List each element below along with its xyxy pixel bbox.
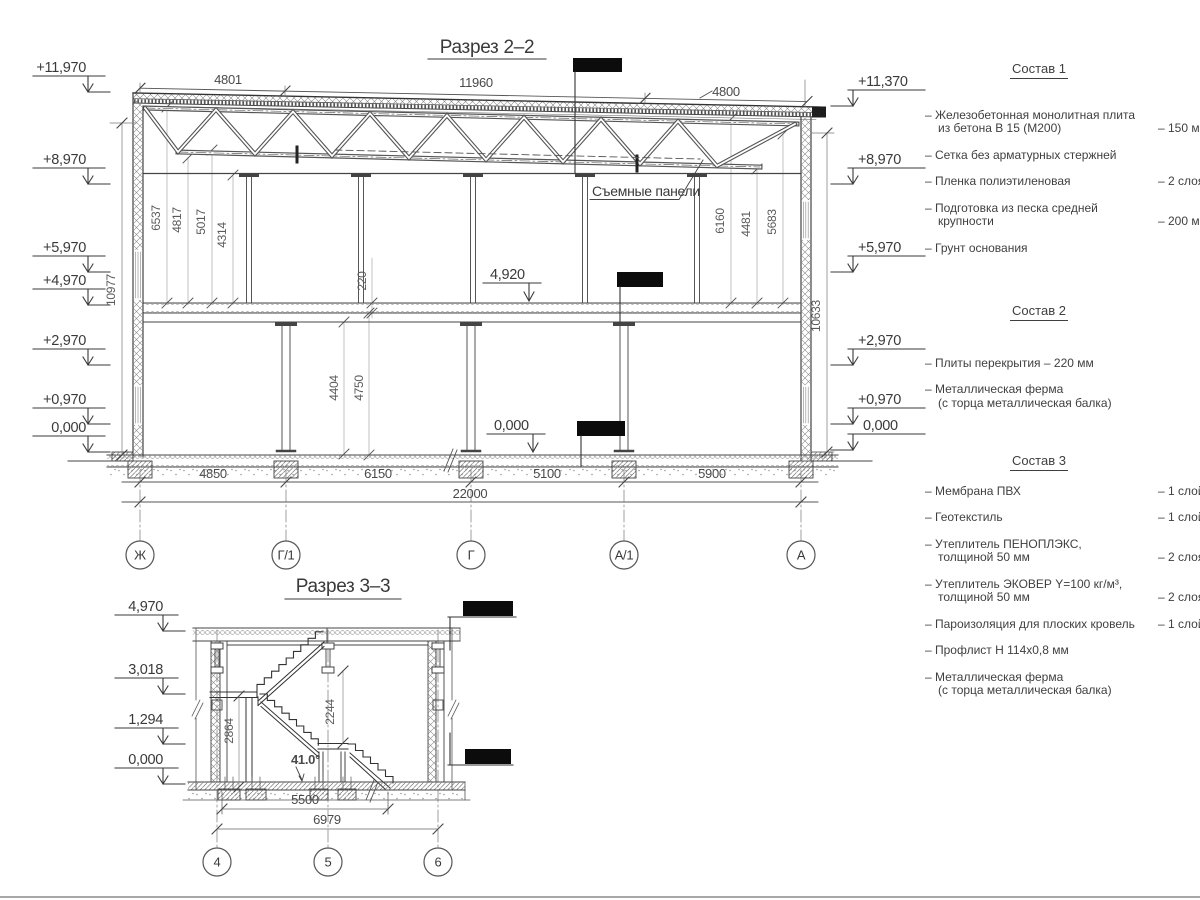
grid-axis-label: А xyxy=(797,548,806,563)
span-dim: 6150 xyxy=(364,466,392,481)
elevation-label: +0,970 xyxy=(858,392,901,408)
span-total-dim: 22000 xyxy=(453,486,488,501)
elevation-label: +11,970 xyxy=(36,60,86,76)
legend-item: – Металлическая ферма (с торца металличе… xyxy=(925,671,1200,698)
legend-item: – Пленка полиэтиленовая – 2 слоя xyxy=(925,175,1200,189)
legend-item: – Плиты перекрытия – 220 мм xyxy=(925,357,1200,371)
legend-item: – Профлист Н 114х0,8 мм xyxy=(925,644,1200,658)
stair-vdim: 2864 xyxy=(222,718,236,744)
material-name: – Мембрана ПВХ xyxy=(925,485,1173,499)
stair-span-dim: 5500 xyxy=(291,792,319,807)
legend-title: Состав 2 xyxy=(925,304,1153,321)
elevation-label: +5,970 xyxy=(858,240,901,256)
material-value: – 150 мм xyxy=(1158,122,1200,136)
floor-slab xyxy=(143,303,801,322)
stair-span-dim: 6979 xyxy=(313,812,341,827)
elevation-label: +11,370 xyxy=(858,74,908,90)
redaction-marks xyxy=(448,601,516,765)
section-3-3: Разрез 3–3 xyxy=(115,576,516,876)
vertical-dim: 6160 xyxy=(713,208,727,234)
grid-axis-label: 4 xyxy=(214,855,221,870)
material-name: – Профлист Н 114х0,8 мм xyxy=(925,644,1173,658)
elevation-label: +8,970 xyxy=(858,152,901,168)
grid-axis-label: Ж xyxy=(134,548,146,563)
elevation-label: +2,970 xyxy=(43,333,86,349)
lower-landing xyxy=(318,744,348,750)
elevation-label: +4,970 xyxy=(43,273,86,289)
material-value: – 1 слой xyxy=(1158,618,1200,632)
span-dim: 5900 xyxy=(698,466,726,481)
level-label-floor2: 4,920 xyxy=(490,267,525,283)
vertical-dim: 6537 xyxy=(149,205,163,231)
material-name: – Железобетонная монолитная плита из бет… xyxy=(925,109,1173,136)
vertical-dim: 4481 xyxy=(739,211,753,237)
section-2-2: Разрез 2–2 xyxy=(33,37,925,569)
legend-item: – Железобетонная монолитная плита из бет… xyxy=(925,109,1200,136)
legend-item: – Металлическая ферма (с торца металличе… xyxy=(925,383,1200,410)
material-value: – 200 мм xyxy=(1158,215,1200,229)
upper-flight-stringer xyxy=(258,642,324,706)
vertical-dim: 4314 xyxy=(215,222,229,248)
roof-dim: 11960 xyxy=(459,75,493,90)
stair-angle-label: 41.0° xyxy=(291,752,320,767)
left-wall xyxy=(133,93,145,457)
vertical-dim: 4817 xyxy=(170,207,184,233)
vertical-dim: 5017 xyxy=(194,209,208,235)
vertical-dim: 5683 xyxy=(765,209,779,235)
elevation-label: 1,294 xyxy=(128,712,163,728)
roof-dim: 4800 xyxy=(712,84,740,99)
legend-item: – Грунт основания xyxy=(925,242,1200,256)
material-value: – 1 слой xyxy=(1158,485,1200,499)
height-dimensions xyxy=(110,118,834,460)
material-name: – Пароизоляция для плоских кровель xyxy=(925,618,1173,632)
legend-item: – Мембрана ПВХ – 1 слой xyxy=(925,485,1200,499)
ground-slab xyxy=(68,449,872,478)
grid-axis-label: 6 xyxy=(435,855,442,870)
grid-axis-label: 5 xyxy=(325,855,332,870)
overall-height-right: 10633 xyxy=(809,299,823,331)
roof-end-cap xyxy=(812,107,826,118)
material-value: – 2 слоя xyxy=(1158,175,1200,189)
redacted-label xyxy=(573,58,622,72)
bottom-flight-steps xyxy=(348,744,393,783)
landing-column xyxy=(246,698,252,783)
section-3-3-title: Разрез 3–3 xyxy=(296,576,391,597)
redacted-label xyxy=(577,421,625,436)
material-name: – Металлическая ферма (с торца металличе… xyxy=(925,383,1173,410)
elevation-label: +0,970 xyxy=(43,392,86,408)
stair-vdim: 2244 xyxy=(323,699,337,725)
overall-height-left: 10977 xyxy=(104,273,118,305)
material-name: – Металлическая ферма (с торца металличе… xyxy=(925,671,1173,698)
grid-axis-label: Г xyxy=(468,548,475,563)
lower-flight-stringer xyxy=(261,702,319,758)
section-2-2-title: Разрез 2–2 xyxy=(440,37,535,58)
drawing-sheet: { "s2": { "title": "Разрез 2–2", "top_di… xyxy=(0,0,1200,900)
material-name: – Пленка полиэтиленовая xyxy=(925,175,1173,189)
legend-sostav-3: Состав 3 – Мембрана ПВХ – 1 слой – Геоте… xyxy=(925,454,1200,711)
grid-axis-label: Г/1 xyxy=(278,548,295,563)
right-wall xyxy=(801,117,811,460)
elevation-label: 0,000 xyxy=(863,418,898,434)
level-label-floor1: 0,000 xyxy=(494,418,529,434)
material-name: – Плиты перекрытия – 220 мм xyxy=(925,357,1173,371)
elevation-label: +2,970 xyxy=(858,333,901,349)
legend-item: – Утеплитель ПЕНОПЛЭКС, толщиной 50 мм –… xyxy=(925,538,1200,565)
material-value: – 2 слоя xyxy=(1158,551,1200,565)
material-name: – Сетка без арматурных стержней xyxy=(925,149,1173,163)
elevation-label: +8,970 xyxy=(43,152,86,168)
elevation-label: 3,018 xyxy=(128,662,163,678)
elevation-label: +5,970 xyxy=(43,240,86,256)
stair-ground-slab xyxy=(183,777,470,802)
material-name: – Подготовка из песка средней крупности xyxy=(925,202,1173,229)
material-name: – Грунт основания xyxy=(925,242,1173,256)
elevation-label: 0,000 xyxy=(51,420,86,436)
floor1-dim: 4750 xyxy=(352,375,366,401)
redacted-label xyxy=(617,272,663,287)
span-dim: 5100 xyxy=(533,466,561,481)
redacted-label xyxy=(465,749,511,764)
legend-sostav-1: Состав 1 – Железобетонная монолитная пли… xyxy=(925,62,1200,268)
grid-axis-label: А/1 xyxy=(615,548,634,563)
elevation-label: 4,970 xyxy=(128,599,163,615)
stair-dimensions xyxy=(212,666,443,834)
elevation-label: 0,000 xyxy=(128,752,163,768)
slab-thickness-dim: 220 xyxy=(355,271,369,291)
legend-sostav-2: Состав 2 – Плиты перекрытия – 220 мм – М… xyxy=(925,304,1200,423)
roof-dim: 4801 xyxy=(214,72,242,87)
material-name: – Утеплитель ПЕНОПЛЭКС, толщиной 50 мм xyxy=(925,538,1173,565)
floor1-dim: 4404 xyxy=(327,375,341,401)
legend-title: Состав 1 xyxy=(925,62,1153,79)
material-name: – Геотекстиль xyxy=(925,511,1173,525)
top-slab xyxy=(193,628,460,645)
material-value: – 1 слой xyxy=(1158,511,1200,525)
legend-item: – Пароизоляция для плоских кровель – 1 с… xyxy=(925,618,1200,632)
legend-item: – Геотекстиль – 1 слой xyxy=(925,511,1200,525)
legend-item: – Подготовка из песка средней крупности … xyxy=(925,202,1200,229)
slope-tick xyxy=(700,91,712,98)
legend-title: Состав 3 xyxy=(925,454,1153,471)
span-dim: 4850 xyxy=(199,466,227,481)
redacted-label xyxy=(463,601,513,616)
material-value: – 2 слоя xyxy=(1158,591,1200,605)
legend-item: – Утеплитель ЭКОВЕР Y=100 кг/м³, толщино… xyxy=(925,578,1200,605)
material-name: – Утеплитель ЭКОВЕР Y=100 кг/м³, толщино… xyxy=(925,578,1173,605)
legend-item: – Сетка без арматурных стержней xyxy=(925,149,1200,163)
lower-flight-steps xyxy=(260,694,318,745)
